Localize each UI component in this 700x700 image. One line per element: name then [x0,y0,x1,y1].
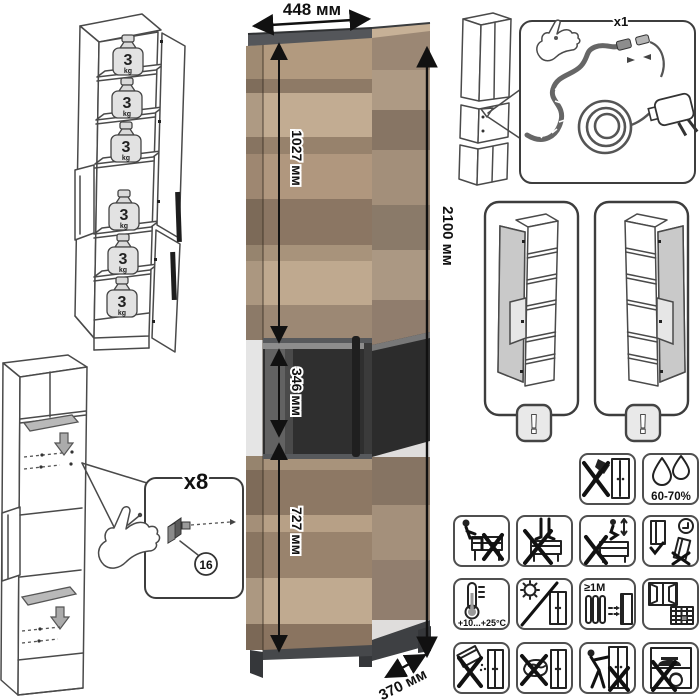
height-dimension-label: 2100 мм [439,206,456,266]
care-tile-humidity: 60-70% [642,453,699,505]
no-cutting-tools-icon [582,455,634,503]
care-tile-no-dragging [579,642,636,694]
no-dragging-icon [582,644,634,692]
humidity-icon: 60-70% [645,455,697,503]
glass-section-label: 346 мм [289,368,305,416]
shelf-assembly-diagram: x8 16 [0,355,260,700]
warning-exclamation: ! [530,409,539,439]
temperature-label: +10...+25°C [457,618,506,628]
furniture-instruction-sheet: 3 kg [0,0,700,700]
no-jumping-icon [582,517,634,565]
part-number-label: 16 [199,558,213,572]
temperature-range-icon: +10...+25°C [456,580,508,628]
humidity-label: 60-70% [651,491,691,503]
no-direct-sunlight-icon [519,580,571,628]
cabinet-legs [250,650,263,678]
shelf-load-diagram: 3 kg [0,0,210,362]
main-cabinet-view: 448 мм 2100 мм 1027 мм 346 мм 727 мм 370… [240,0,460,700]
care-tile-no-jumping [579,515,636,567]
warning-badge: ! [626,405,660,441]
care-tile-no-cutting-tools [579,453,636,505]
glass-section-side [372,332,430,457]
width-dimension-label: 448 мм [283,0,341,19]
door-adjust-icon [645,517,697,565]
fastener-callout: x8 16 [99,469,243,598]
care-tile-ventilation [642,578,699,630]
mini-cabinet [459,13,511,185]
door-handle [352,336,360,457]
care-tile-no-sunlight [516,578,573,630]
no-abrasive-powder-icon [456,644,508,692]
lighting-kit-diagram: x1 [455,5,700,190]
warning-exclamation: ! [639,409,648,439]
depth-dimension-label: 370 мм [376,666,430,700]
fastener-quantity-label: x8 [184,469,208,494]
door-variant-panels: ! ! [480,196,695,448]
care-tile-no-abrasive-powder [453,642,510,694]
upper-section-label: 1027 мм [289,130,305,186]
no-standing-icon [519,517,571,565]
cabinet-photo [246,23,431,678]
care-tile-no-standing [516,515,573,567]
care-tile-temperature: +10...+25°C [453,578,510,630]
distance-label: ≥1М [584,582,605,594]
no-sitting-icon [456,517,508,565]
care-tile-door-adjust [642,515,699,567]
care-tile-no-abrasive-sponge [516,642,573,694]
ventilation-icon [645,580,697,628]
warning-badge: ! [517,405,551,441]
care-tile-radiator-distance: ≥1М [579,578,636,630]
wireframe-cabinet-assembly [1,355,87,695]
kit-quantity-label: x1 [614,14,628,29]
variant-cabinet-right-hinged [625,214,685,386]
lower-section-label: 727 мм [289,507,305,555]
care-tile-no-overload [642,642,699,694]
radiator-distance-icon: ≥1М [582,580,634,628]
no-overload-icon [645,644,697,692]
variant-cabinet-left-hinged [498,214,558,386]
kit-panel: x1 [520,14,698,183]
no-abrasive-sponge-icon [519,644,571,692]
care-tile-no-sitting [453,515,510,567]
